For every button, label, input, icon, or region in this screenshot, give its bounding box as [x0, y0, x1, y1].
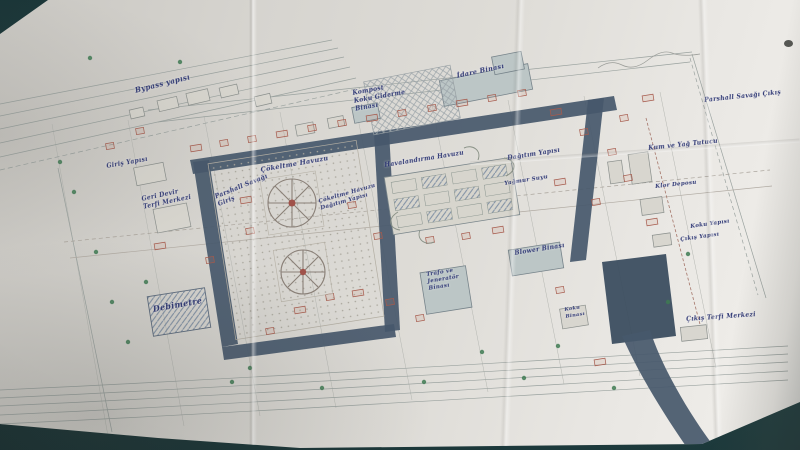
photo-shading	[0, 0, 800, 450]
photo-of-site-plan: Bypass yapısıKompostKoku GidermeBinasıİd…	[0, 0, 800, 450]
